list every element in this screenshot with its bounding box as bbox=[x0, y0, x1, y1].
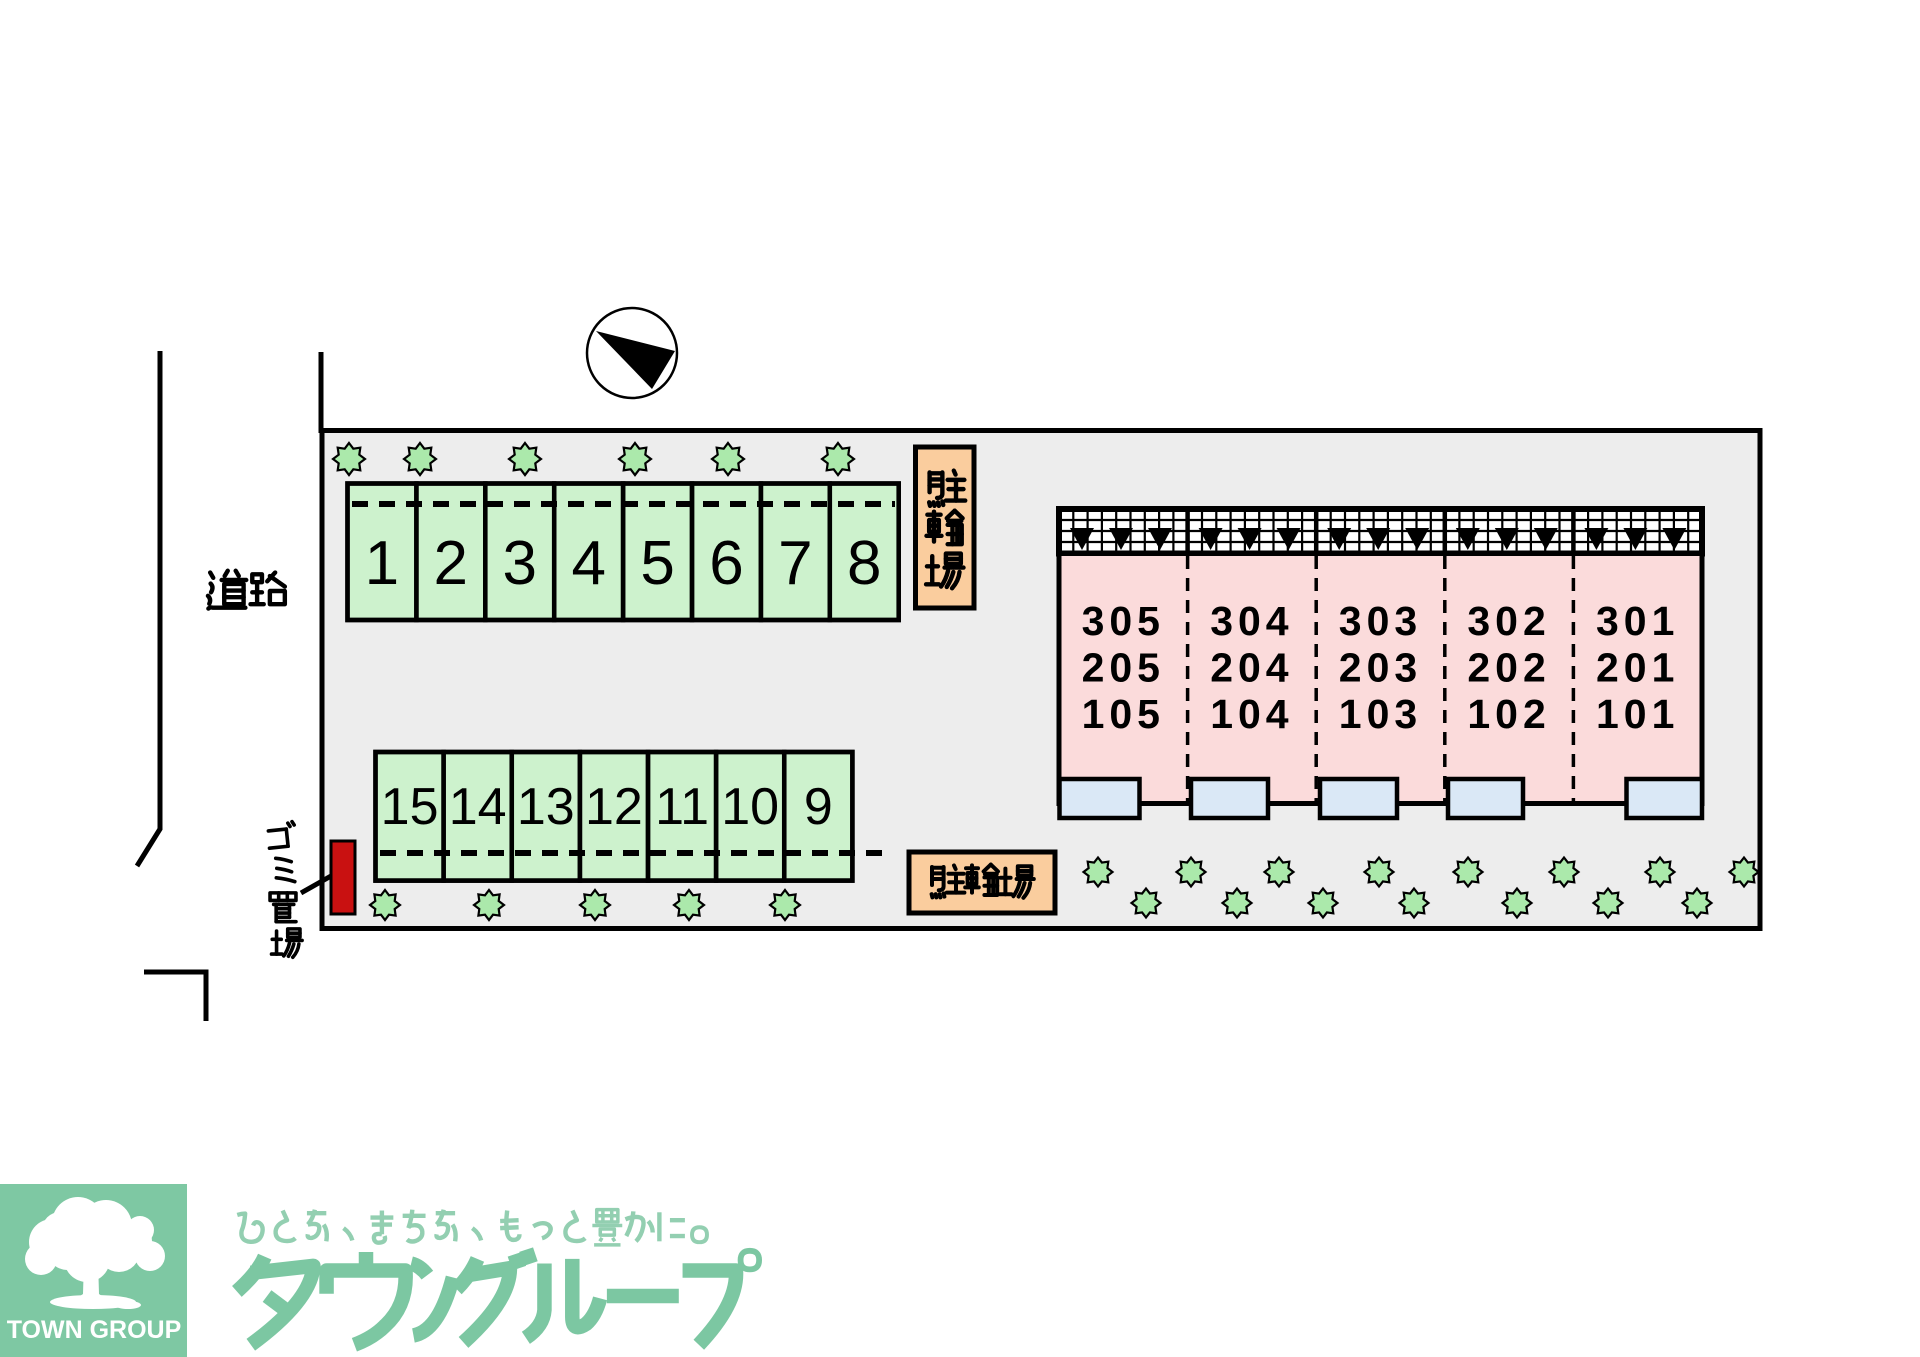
svg-text:TOWN GROUP: TOWN GROUP bbox=[7, 1316, 182, 1344]
svg-text:203: 203 bbox=[1339, 645, 1422, 691]
svg-text:105: 105 bbox=[1082, 691, 1165, 737]
svg-text:201: 201 bbox=[1596, 645, 1679, 691]
svg-text:3: 3 bbox=[503, 529, 537, 598]
svg-text:202: 202 bbox=[1467, 645, 1550, 691]
svg-text:13: 13 bbox=[517, 778, 575, 836]
svg-text:4: 4 bbox=[571, 529, 605, 598]
svg-text:9: 9 bbox=[804, 778, 833, 836]
svg-text:6: 6 bbox=[709, 529, 743, 598]
svg-text:15: 15 bbox=[381, 778, 439, 836]
svg-text:1: 1 bbox=[365, 529, 399, 598]
svg-text:301: 301 bbox=[1596, 598, 1679, 644]
svg-text:104: 104 bbox=[1210, 691, 1293, 737]
svg-text:5: 5 bbox=[640, 529, 674, 598]
svg-text:101: 101 bbox=[1596, 691, 1679, 737]
svg-text:2: 2 bbox=[434, 529, 468, 598]
svg-text:103: 103 bbox=[1339, 691, 1422, 737]
svg-text:11: 11 bbox=[655, 778, 709, 836]
svg-text:303: 303 bbox=[1339, 598, 1422, 644]
svg-text:204: 204 bbox=[1210, 645, 1293, 691]
svg-text:205: 205 bbox=[1082, 645, 1165, 691]
svg-text:304: 304 bbox=[1210, 598, 1293, 644]
svg-text:302: 302 bbox=[1467, 598, 1550, 644]
svg-text:7: 7 bbox=[778, 529, 812, 598]
svg-text:10: 10 bbox=[721, 778, 779, 836]
svg-text:12: 12 bbox=[585, 778, 643, 836]
svg-text:8: 8 bbox=[847, 529, 881, 598]
svg-text:14: 14 bbox=[449, 778, 507, 836]
svg-text:305: 305 bbox=[1082, 598, 1165, 644]
svg-text:102: 102 bbox=[1467, 691, 1550, 737]
